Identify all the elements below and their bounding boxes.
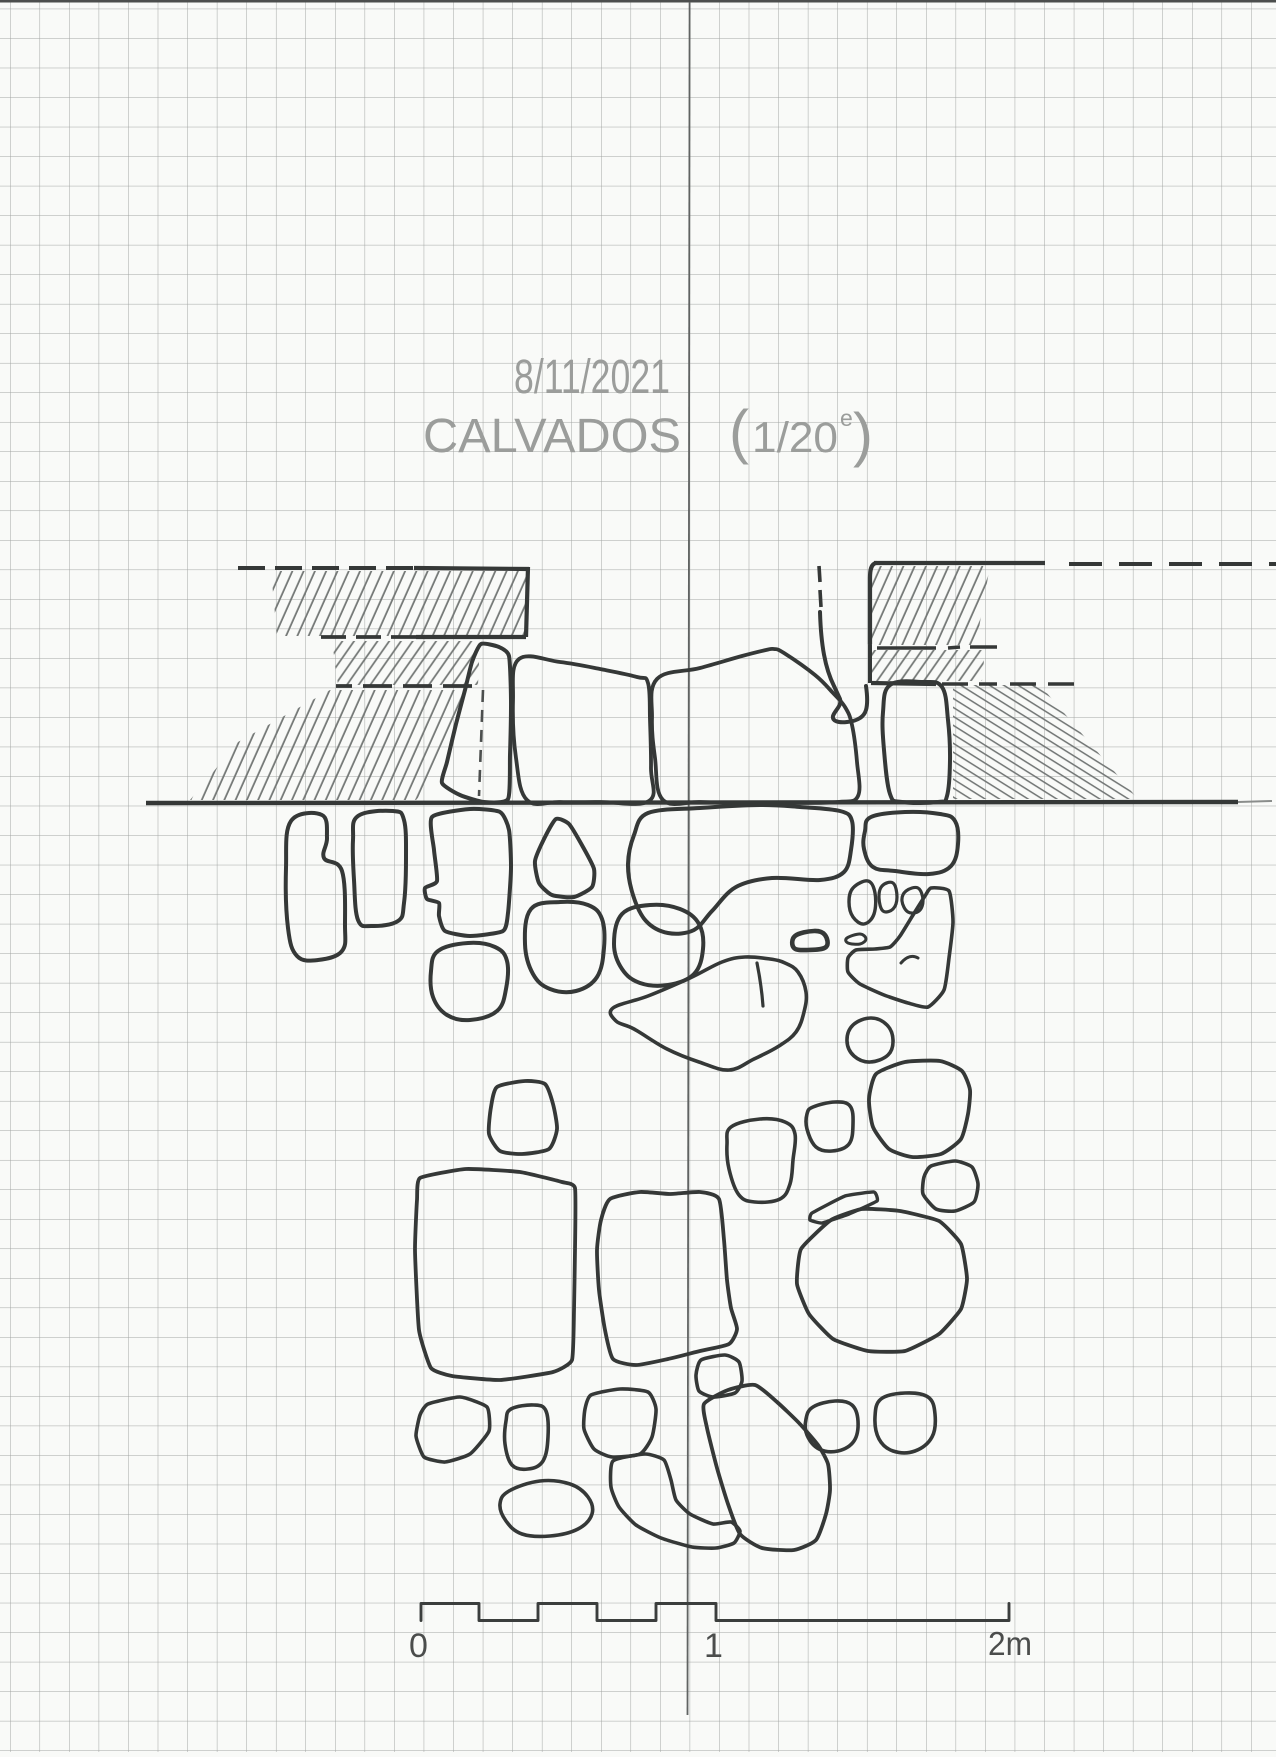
svg-text:(: ( — [729, 398, 749, 465]
svg-text:8/11/2021: 8/11/2021 — [514, 351, 670, 404]
svg-text:e: e — [840, 405, 853, 431]
svg-text:CALVADOS: CALVADOS — [423, 410, 681, 463]
svg-text:0: 0 — [409, 1627, 428, 1665]
svg-text:2m: 2m — [988, 1625, 1032, 1662]
svg-text:): ) — [853, 401, 873, 468]
svg-text:1/20: 1/20 — [752, 414, 838, 462]
svg-text:1: 1 — [704, 1627, 723, 1665]
